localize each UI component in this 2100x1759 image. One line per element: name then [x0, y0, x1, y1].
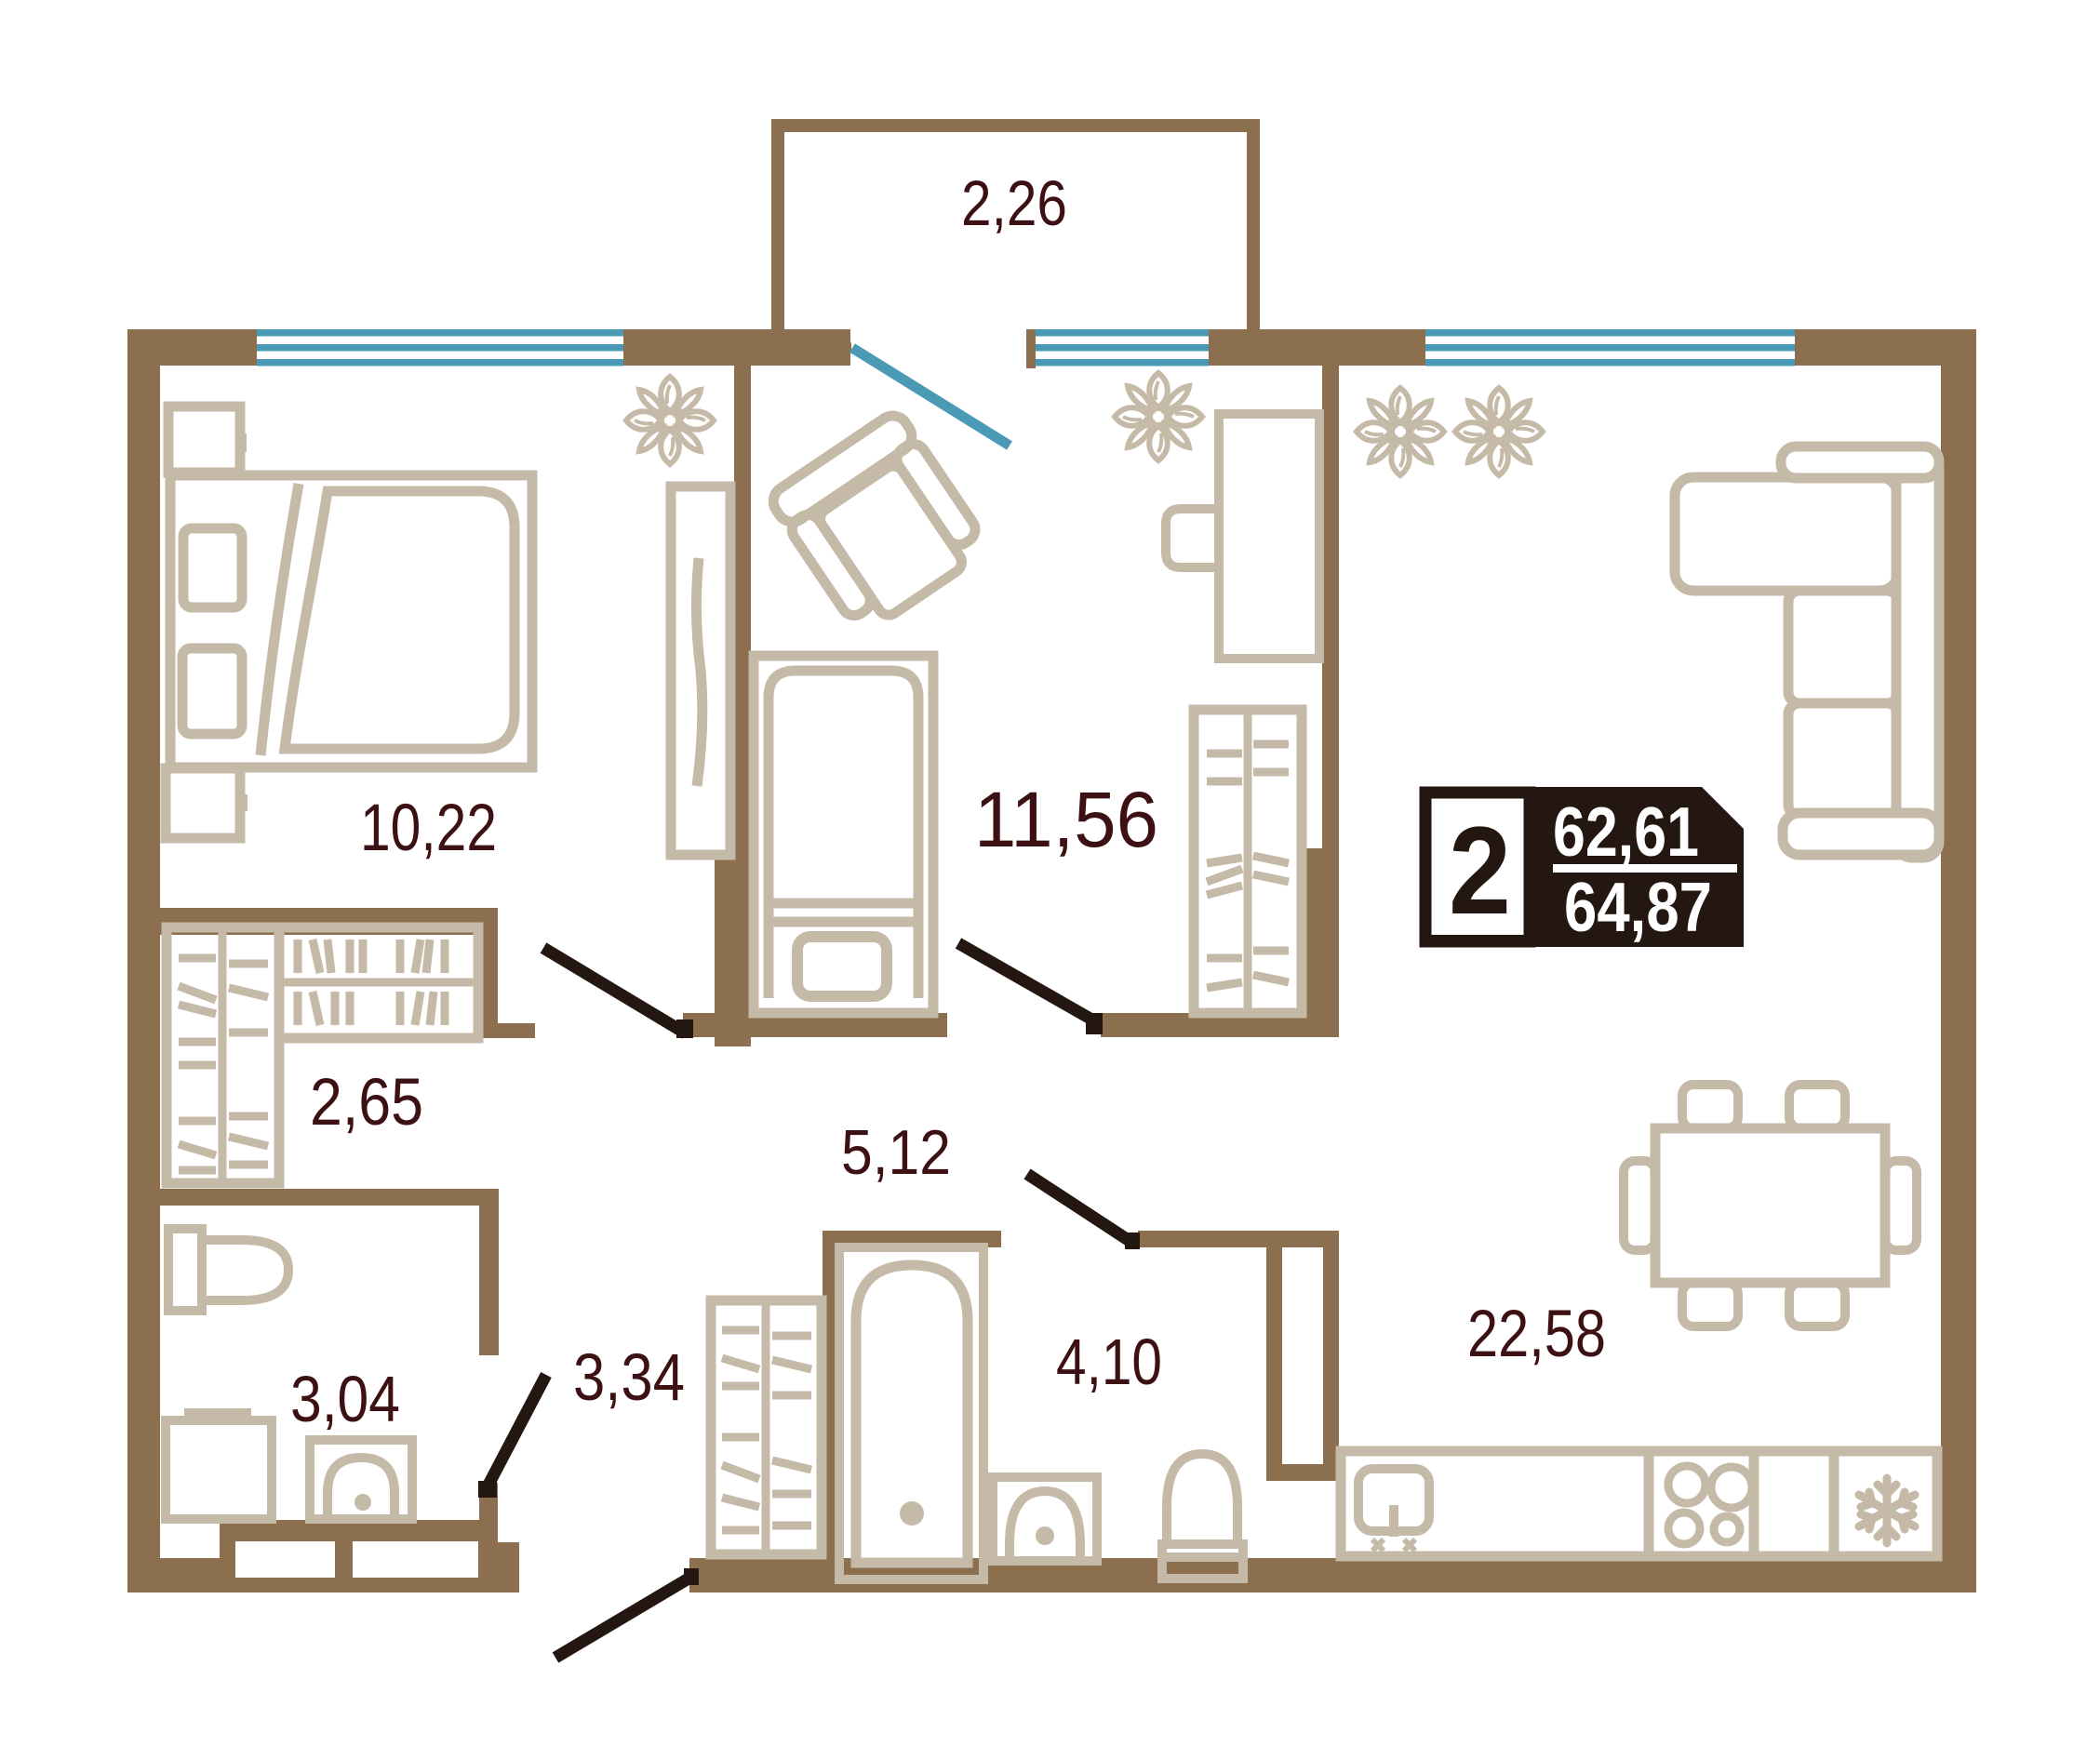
svg-text:22,58: 22,58	[1467, 1298, 1606, 1371]
svg-text:3,34: 3,34	[573, 1341, 685, 1415]
svg-text:4,10: 4,10	[1056, 1326, 1162, 1398]
svg-text:2,65: 2,65	[310, 1066, 423, 1139]
svg-text:2: 2	[1449, 802, 1511, 940]
svg-text:2,26: 2,26	[961, 167, 1067, 239]
svg-text:3,04: 3,04	[290, 1363, 400, 1435]
svg-text:62,61: 62,61	[1553, 793, 1699, 871]
svg-text:11,56: 11,56	[974, 776, 1158, 863]
svg-text:64,87: 64,87	[1564, 868, 1712, 946]
svg-text:5,12: 5,12	[841, 1117, 951, 1188]
svg-text:10,22: 10,22	[360, 792, 497, 865]
